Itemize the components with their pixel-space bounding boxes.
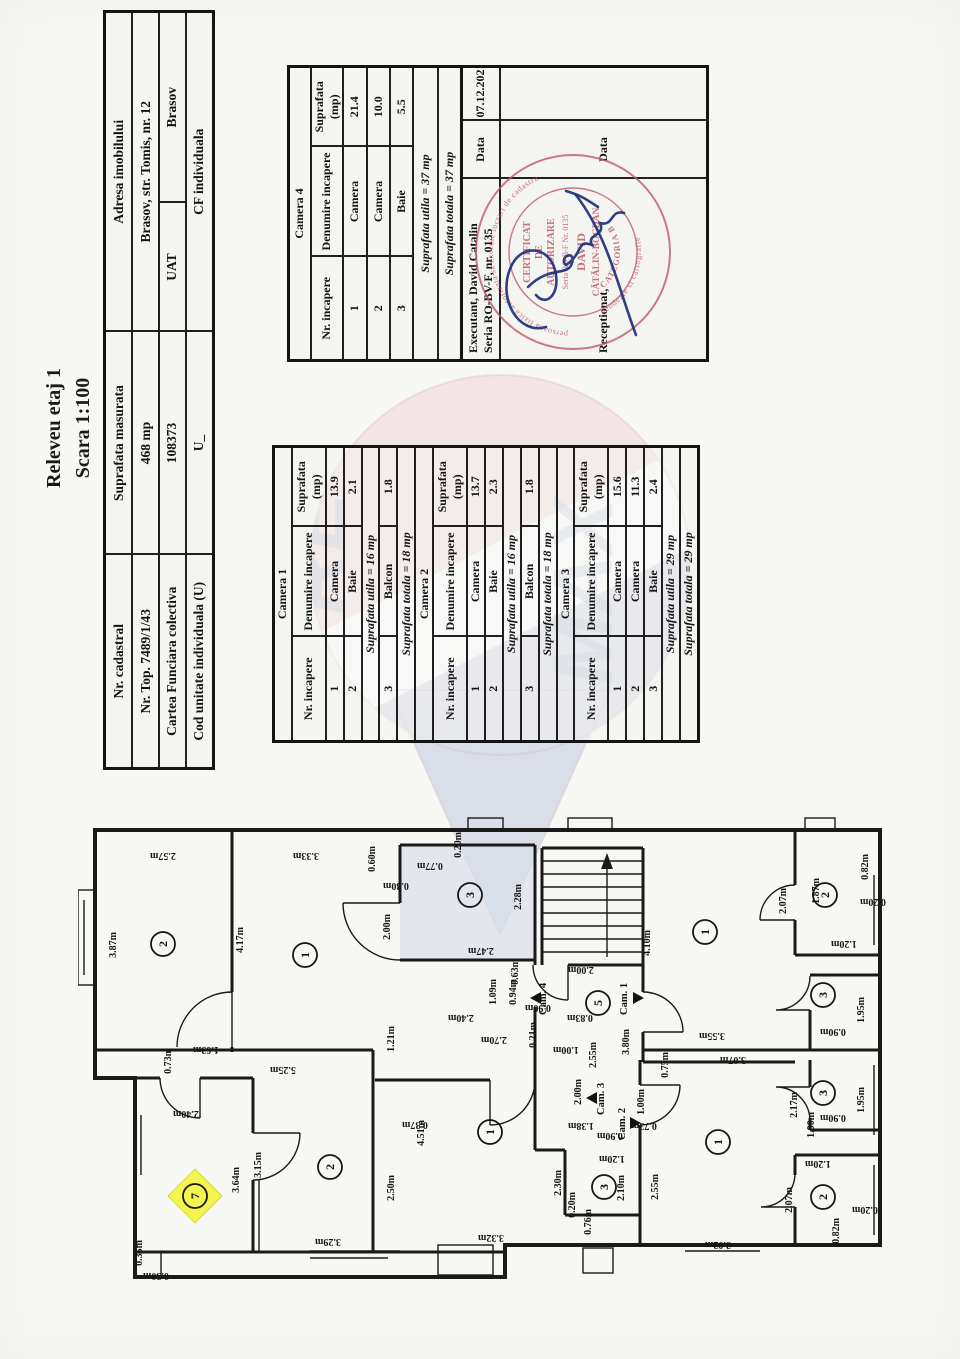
header-cell: Nr. incapere: [311, 257, 343, 361]
cell: 1.8: [521, 447, 539, 527]
room-number: 1: [483, 1129, 497, 1135]
room-number: 1: [298, 952, 312, 958]
dimension-label: 3.55m: [698, 1030, 725, 1041]
dimension-label: 0.21m: [528, 1021, 539, 1048]
dimension-label: 1.00m: [636, 1088, 647, 1115]
header-cell: Suprafata (mp): [311, 67, 343, 147]
table-row: 2Camera10.0: [367, 67, 390, 361]
dimension-label: 1.95m: [856, 996, 867, 1023]
table-row: Camera 4: [289, 67, 311, 361]
data-value-cell: 07.12.2021: [462, 67, 500, 121]
dimension-label: 4.10m: [642, 929, 653, 956]
table-row: Suprafata totala = 18 mp: [539, 447, 557, 742]
empty-cell: [500, 67, 708, 121]
dimension-label: 1.87m: [811, 877, 822, 904]
stamp-serial: Seria RO-B-F Nr. 0135: [561, 215, 570, 290]
dimension-label: 2.07m: [784, 1186, 795, 1213]
value-cell: Cod unitate individuala (U): [186, 555, 214, 769]
totala-cell: Suprafata totala = 18 mp: [397, 447, 415, 742]
dimension-label: 1.20m: [598, 1153, 625, 1164]
value-cell: 108373: [159, 332, 186, 555]
dimension-label: 2.40m: [172, 1108, 199, 1119]
cell: Camera: [343, 147, 367, 257]
value-cell: U_: [186, 332, 214, 555]
table-row: 3Balcon1.8: [379, 447, 397, 742]
value-cell: CF individuala: [186, 12, 214, 332]
cell: 2.4: [644, 447, 662, 527]
dimension-label: 2.50m: [386, 1174, 397, 1201]
cell: 13.7: [467, 447, 485, 527]
room-number: 2: [816, 1194, 830, 1200]
dimension-label: 0.20m: [851, 1204, 878, 1215]
dimension-label: 2.55m: [650, 1173, 661, 1200]
table-row: Nr. incapereDenumire incapereSuprafata (…: [574, 447, 608, 742]
table-row: Camera 3: [557, 447, 575, 742]
table-row: 2Camera11.3: [626, 447, 644, 742]
dimension-label: 0.82m: [860, 853, 871, 880]
dimension-label: 0.73m: [163, 1047, 174, 1074]
header-cell: Nr. incapere: [574, 637, 608, 742]
table-row: Nr. incapereDenumire incapereSuprafata (…: [292, 447, 326, 742]
cell: Camera: [326, 527, 344, 637]
cell: 2.1: [344, 447, 362, 527]
dimension-label: 3.80m: [621, 1028, 632, 1055]
door-direction-triangle: [633, 992, 644, 1004]
stairs: [542, 853, 643, 957]
cell: Baie: [344, 527, 362, 637]
dimension-label: 3.29m: [314, 1236, 341, 1247]
dimension-label: 2.55m: [588, 1041, 599, 1068]
table-row: Nr. incapere Denumire incapere Suprafata…: [311, 67, 343, 361]
dimension-label: 0.83m: [566, 1012, 593, 1023]
header-cell: Suprafata masurata: [105, 332, 133, 555]
utila-cell: Suprafata utila = 29 mp: [662, 447, 680, 742]
room-number: 2: [156, 941, 170, 947]
title-line-1: Releveu etaj 1: [40, 348, 69, 508]
cell: Balcon: [379, 527, 397, 637]
table-row: 1Camera21.4: [343, 67, 367, 361]
table-row: Nr. incapereDenumire incapereSuprafata (…: [433, 447, 467, 742]
cell: 1: [343, 257, 367, 361]
cell: 2: [344, 637, 362, 742]
dimension-label: 0.90m: [819, 1026, 846, 1037]
cell: Camera: [367, 147, 390, 257]
cell: 11.3: [626, 447, 644, 527]
table-row: Suprafata utila = 29 mp: [662, 447, 680, 742]
cell: 3: [644, 637, 662, 742]
cell: Baie: [390, 147, 413, 257]
dimension-label: 0.75m: [660, 1051, 671, 1078]
table-row: 3Baie2.4: [644, 447, 662, 742]
cameras-1-2-3-block: Camera 1 Nr. incapereDenumire incapereSu…: [272, 448, 700, 743]
dimension-label: 1.09m: [488, 978, 499, 1005]
value-cell: UAT Brasov: [159, 12, 186, 332]
totala-cell: Suprafata totala = 37 mp: [438, 67, 462, 361]
cadastral-info-block: Nr. cadastral Suprafata masurata Adresa …: [103, 13, 215, 770]
dimension-label: 3.64m: [231, 1166, 242, 1193]
cell: Balcon: [521, 527, 539, 637]
page-title: Releveu etaj 1 Scara 1:100: [40, 348, 104, 508]
cell: 3: [379, 637, 397, 742]
table-row: 1Camera13.7: [467, 447, 485, 742]
dimension-label: 2.57m: [149, 850, 176, 861]
table-title-cell: Camera 3: [557, 447, 575, 742]
room-number: 3: [463, 892, 477, 898]
dimension-label: 2.10m: [616, 1174, 627, 1201]
cadastral-info-table: Nr. cadastral Suprafata masurata Adresa …: [103, 10, 215, 770]
table-row: 1Camera13.9: [326, 447, 344, 742]
dimension-label: 2.40m: [447, 1012, 474, 1023]
header-cell: Nr. cadastral: [105, 555, 133, 769]
uat-value: Brasov: [164, 13, 180, 202]
header-cell: Suprafata (mp): [292, 447, 326, 527]
cell: Camera: [467, 527, 485, 637]
header-cell: Denumire incapere: [574, 527, 608, 637]
dimension-label: 0.77m: [416, 860, 443, 871]
cameras-1-2-3-area-table: Camera 1 Nr. incapereDenumire incapereSu…: [272, 445, 700, 743]
room-number: 1: [711, 1139, 725, 1145]
dimension-label: 3.15m: [253, 1151, 264, 1178]
dimension-label: 2.07m: [778, 887, 789, 914]
cell: 2: [367, 257, 390, 361]
dimension-label: 0.20m: [859, 896, 886, 907]
header-cell: Nr. incapere: [292, 637, 326, 742]
room-number: 7: [188, 1193, 202, 1199]
room-number: 3: [597, 1184, 611, 1190]
table-row: Cod unitate individuala (U) U_ CF indivi…: [186, 12, 214, 769]
totala-cell: Suprafata totala = 29 mp: [680, 447, 699, 742]
table-row: 1Camera15.6: [608, 447, 626, 742]
camera4-area-table: Camera 4 Nr. incapere Denumire incapere …: [287, 65, 463, 362]
room-number: 5: [591, 1000, 605, 1006]
value-cell: 468 mp: [132, 332, 159, 555]
dimension-label: 0.60m: [367, 845, 378, 872]
table-row: Suprafata totala = 18 mp: [397, 447, 415, 742]
cell: 1: [467, 637, 485, 742]
table-row: Nr. cadastral Suprafata masurata Adresa …: [105, 12, 133, 769]
dimension-label: 3.07m: [719, 1054, 746, 1065]
floor-plan-drawing: 21312353121327 3.87m2.57m3.33m4.17m0.60m…: [78, 815, 903, 1310]
dimension-label: 1.00m: [806, 1111, 817, 1138]
room-number: 3: [816, 992, 830, 998]
table-row: Cartea Funciara colectiva 108373 UAT Bra…: [159, 12, 186, 769]
table-row: Suprafata utila = 37 mp: [413, 67, 438, 361]
table-row: Suprafata totala = 29 mp: [680, 447, 699, 742]
dimension-label: 2.30m: [553, 1169, 564, 1196]
table-title-cell: Camera 4: [289, 67, 311, 361]
cell: 21.4: [343, 67, 367, 147]
table-row: Suprafata utila = 16 mp: [503, 447, 521, 742]
table-title-cell: Camera 2: [415, 447, 433, 742]
value-cell: Cartea Funciara colectiva: [159, 555, 186, 769]
dimension-label: 0.82m: [831, 1217, 842, 1244]
header-cell: Denumire incapere: [311, 147, 343, 257]
cell: 1: [608, 637, 626, 742]
header-cell: Denumire incapere: [292, 527, 326, 637]
room-number: 2: [323, 1164, 337, 1170]
utila-cell: Suprafata utila = 37 mp: [413, 67, 438, 361]
dimension-label: 2.70m: [480, 1034, 507, 1045]
dimension-label: 0.35m: [134, 1239, 145, 1266]
cell: 2: [626, 637, 644, 742]
dimension-label: 1.38m: [567, 1120, 594, 1131]
table-row: 2Baie2.3: [485, 447, 503, 742]
uat-label: UAT: [160, 202, 185, 331]
cell: Camera: [626, 527, 644, 637]
table-row: 2Baie2.1: [344, 447, 362, 742]
value-cell: Brasov, str. Tomis, nr. 12: [132, 12, 159, 332]
dimension-label: 0.20m: [453, 831, 464, 858]
dimension-label: 2.00m: [567, 964, 594, 975]
authorization-stamp: persoana fizica autorizata sa execute lu…: [468, 147, 678, 357]
cell: Baie: [485, 527, 503, 637]
dimension-label: 0.20m: [567, 1191, 578, 1218]
table-row: Camera 2: [415, 447, 433, 742]
dimension-label: 2.28m: [513, 883, 524, 910]
dimension-label: 0.37m: [401, 1119, 428, 1130]
cell: 3: [390, 257, 413, 361]
value-cell: Nr. Top. 7489/1/43: [132, 555, 159, 769]
totala-cell: Suprafata totala = 18 mp: [539, 447, 557, 742]
dimension-label: 1.00m: [552, 1044, 579, 1055]
table-title-cell: Camera 1: [274, 447, 292, 742]
dimension-label: 0.30m: [382, 880, 409, 891]
cell: 2: [485, 637, 503, 742]
dimension-label: 0.94m: [508, 978, 519, 1005]
dimension-label: 0.76m: [583, 1208, 594, 1235]
dimension-label: 2.47m: [467, 945, 494, 956]
cell: 2.3: [485, 447, 503, 527]
dimension-label: 3.87m: [108, 931, 119, 958]
header-cell: Suprafata (mp): [574, 447, 608, 527]
dimension-label: 1.20m: [804, 1158, 831, 1169]
dimension-label: 0.90m: [819, 1112, 846, 1123]
dimension-label: 1.63m: [192, 1044, 219, 1055]
header-cell: Denumire incapere: [433, 527, 467, 637]
cell: 10.0: [367, 67, 390, 147]
door-target-label: Cam. 3: [596, 1083, 607, 1115]
dimension-label: 3.02m: [704, 1239, 731, 1250]
dimension-label: 3.32m: [477, 1232, 504, 1243]
title-line-2: Scara 1:100: [69, 348, 98, 508]
header-cell: Suprafata (mp): [433, 447, 467, 527]
dimension-label: 2.17m: [789, 1091, 800, 1118]
room-number: 1: [698, 929, 712, 935]
dimension-label: 1.95m: [856, 1086, 867, 1113]
utila-cell: Suprafata utila = 16 mp: [362, 447, 380, 742]
table-row: 3Balcon1.8: [521, 447, 539, 742]
header-cell: Nr. incapere: [433, 637, 467, 742]
table-row: Camera 1: [274, 447, 292, 742]
dimension-label: 2.00m: [573, 1078, 584, 1105]
door-target-label: Cam. 2: [617, 1108, 628, 1140]
table-row: 3Baie5.5: [390, 67, 413, 361]
dimension-label: 1.20m: [830, 938, 857, 949]
dimension-label: 3.33m: [292, 850, 319, 861]
cell: Camera: [608, 527, 626, 637]
dimension-label: 4.17m: [235, 926, 246, 953]
room-number: 3: [816, 1090, 830, 1096]
cell: 1: [326, 637, 344, 742]
utila-cell: Suprafata utila = 16 mp: [503, 447, 521, 742]
dimension-label: 0.30m: [142, 1270, 169, 1281]
cell: 15.6: [608, 447, 626, 527]
dimension-label: 2.00m: [382, 913, 393, 940]
cell: Baie: [644, 527, 662, 637]
table-row: Nr. Top. 7489/1/43 468 mp Brasov, str. T…: [132, 12, 159, 769]
dimension-label: 1.21m: [386, 1025, 397, 1052]
scanned-floor-plan-document: RE MAX Releveu etaj 1 Scara 1:100 Nr. ca…: [0, 0, 960, 1359]
stamp-name: DAVID: [574, 233, 588, 271]
cell: 5.5: [390, 67, 413, 147]
table-row: Suprafata utila = 16 mp: [362, 447, 380, 742]
dimension-label: 5.25m: [269, 1064, 296, 1075]
door-target-label: Cam. 1: [619, 983, 630, 1015]
header-cell: Adresa imobilului: [105, 12, 133, 332]
cell: 1.8: [379, 447, 397, 527]
door-direction-triangle: [586, 1092, 597, 1104]
table-row: Suprafata totala = 37 mp: [438, 67, 462, 361]
cell: 3: [521, 637, 539, 742]
cell: 13.9: [326, 447, 344, 527]
